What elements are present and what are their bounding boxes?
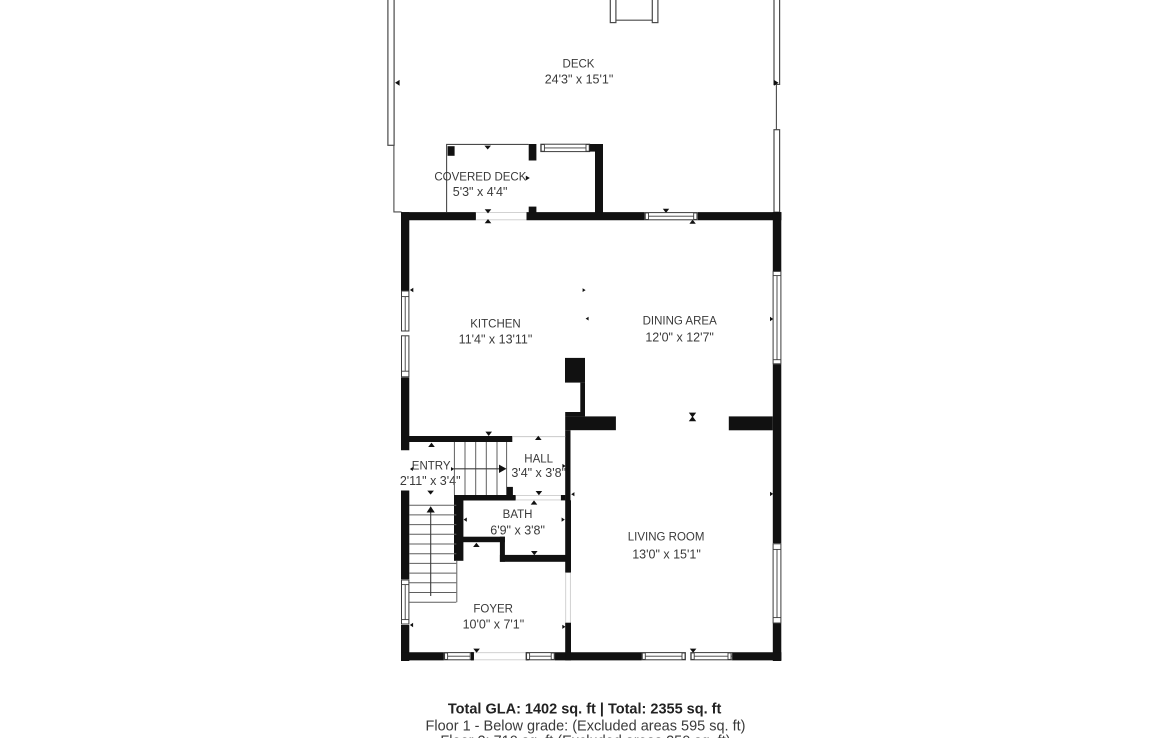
svg-text:HALL: HALL xyxy=(524,454,553,466)
svg-text:12'0" x 12'7": 12'0" x 12'7" xyxy=(645,331,714,345)
svg-text:LIVING ROOM: LIVING ROOM xyxy=(628,532,705,544)
svg-text:2'11" x 3'4": 2'11" x 3'4" xyxy=(400,474,461,488)
svg-text:Floor 2: 710 sq. ft (Excluded: Floor 2: 710 sq. ft (Excluded areas 250 … xyxy=(440,734,730,738)
svg-text:DECK: DECK xyxy=(563,59,595,71)
svg-text:COVERED DECK: COVERED DECK xyxy=(434,172,526,184)
svg-text:3'4" x 3'8": 3'4" x 3'8" xyxy=(511,466,566,480)
svg-text:BATH: BATH xyxy=(503,509,533,521)
svg-text:KITCHEN: KITCHEN xyxy=(470,319,520,331)
svg-text:Floor 1 - Below grade: (Exclud: Floor 1 - Below grade: (Excluded areas 5… xyxy=(426,719,746,735)
svg-text:FOYER: FOYER xyxy=(473,604,513,616)
svg-text:11'4" x 13'11": 11'4" x 13'11" xyxy=(459,333,533,347)
svg-text:13'0" x 15'1": 13'0" x 15'1" xyxy=(632,548,701,562)
svg-text:24'3" x 15'1": 24'3" x 15'1" xyxy=(545,73,614,87)
svg-text:ENTRY: ENTRY xyxy=(412,461,451,473)
svg-text:Total GLA: 1402 sq. ft | Total: Total GLA: 1402 sq. ft | Total: 2355 sq.… xyxy=(448,702,722,718)
svg-text:5'3" x 4'4": 5'3" x 4'4" xyxy=(453,185,508,199)
svg-text:10'0" x 7'1": 10'0" x 7'1" xyxy=(463,618,525,632)
svg-text:DINING AREA: DINING AREA xyxy=(643,316,717,328)
svg-text:6'9" x 3'8": 6'9" x 3'8" xyxy=(490,524,545,538)
